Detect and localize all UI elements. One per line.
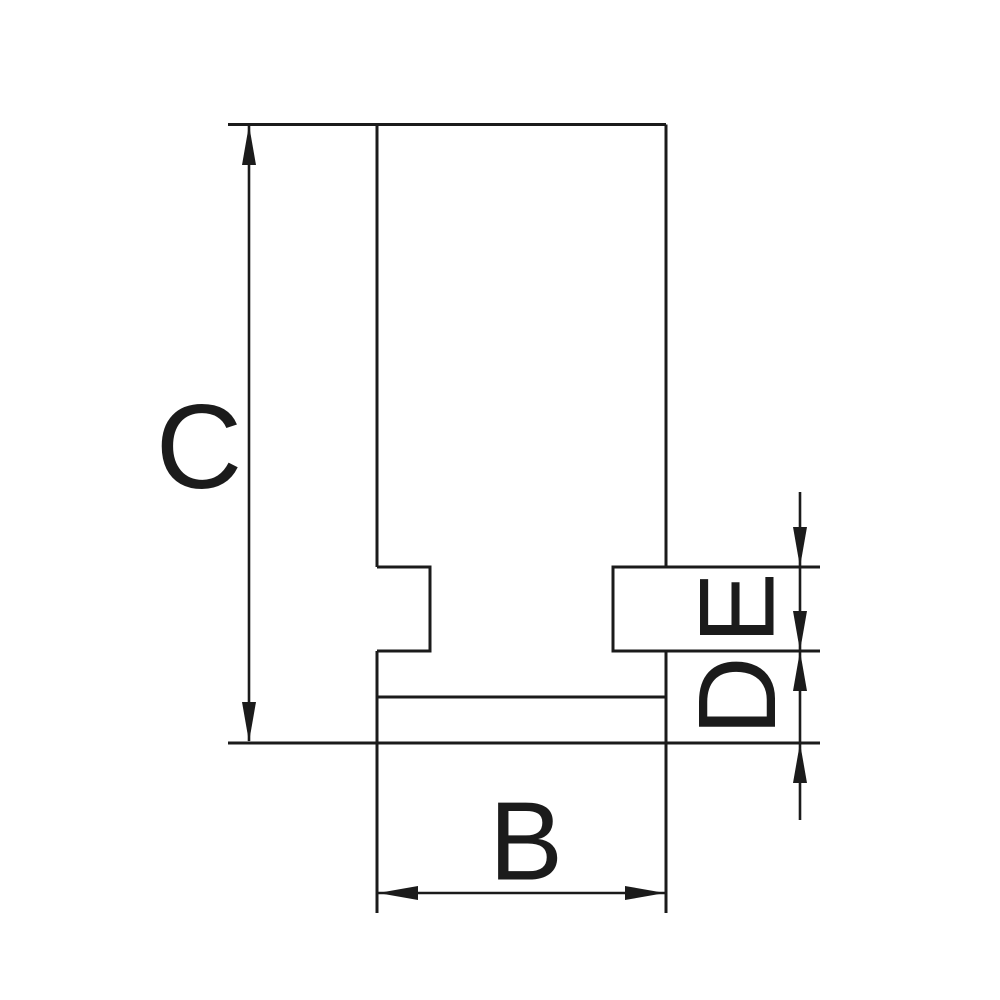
arrowhead-e-top: [793, 527, 807, 567]
left-groove: [377, 567, 430, 651]
dim-label-e: E: [684, 572, 791, 643]
arrowhead-c-top: [242, 125, 256, 165]
dim-label-c: C: [156, 387, 243, 507]
drawing-page: C B E D: [0, 0, 1000, 1000]
dim-label-d: D: [683, 656, 793, 735]
arrowhead-b-right: [625, 886, 665, 900]
dim-label-b: B: [489, 787, 563, 898]
arrowhead-b-left: [378, 886, 418, 900]
arrowhead-d-bottom: [793, 743, 807, 783]
arrowhead-c-bottom: [242, 702, 256, 742]
